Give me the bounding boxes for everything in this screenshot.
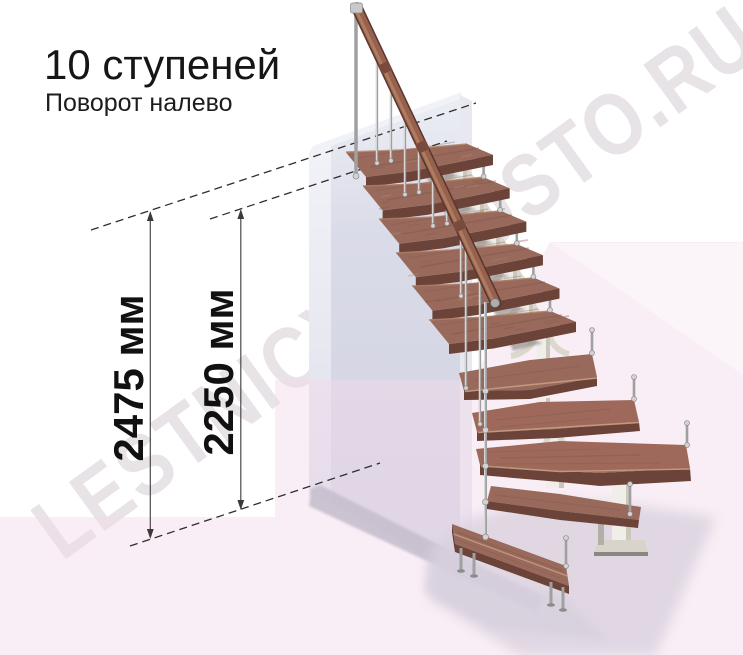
svg-text:2475 мм: 2475 мм [105,294,152,461]
svg-text:2250 мм: 2250 мм [195,288,242,455]
svg-text:10 ступеней: 10 ступеней [44,41,280,88]
svg-text:Поворот налево: Поворот налево [45,89,233,117]
